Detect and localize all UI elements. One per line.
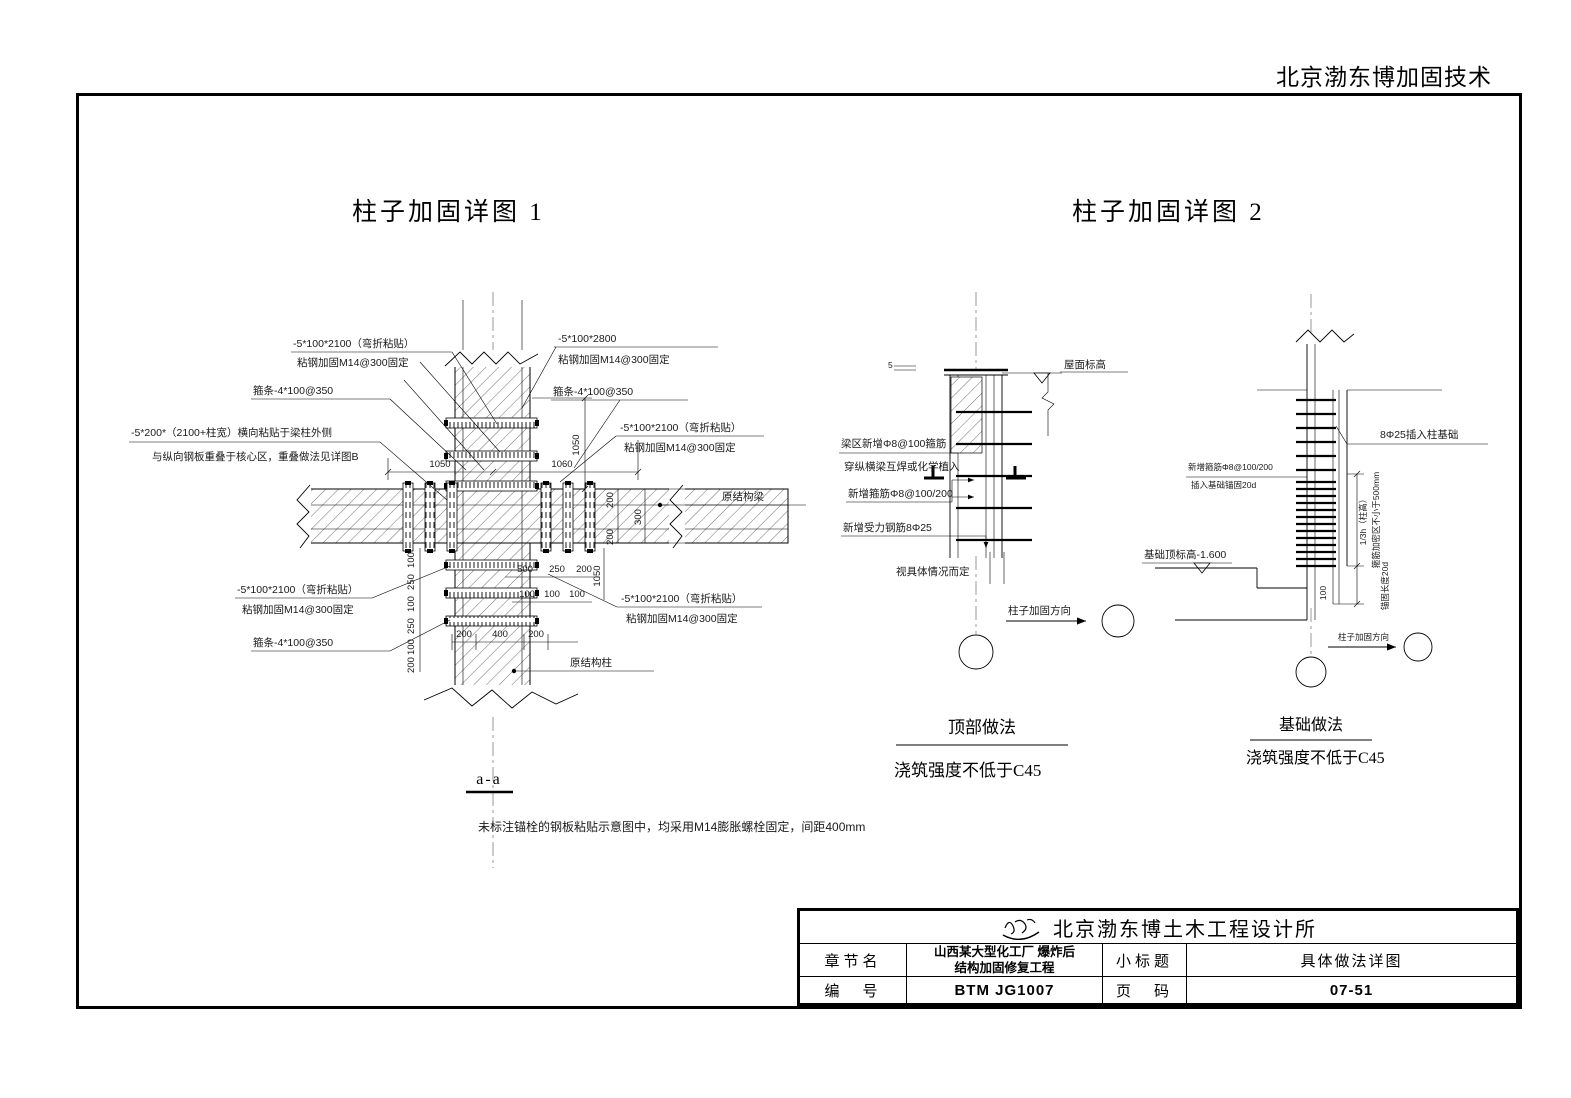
annotation: 梁区新增Φ8@100箍筋 bbox=[841, 437, 946, 450]
dim: 300 bbox=[633, 509, 644, 525]
annotation: 与纵向钢板重叠于核心区，重叠做法见详图B bbox=[152, 450, 359, 463]
subtitle-label: 小标题 bbox=[1102, 943, 1186, 976]
page-label: 页 码 bbox=[1102, 976, 1186, 1003]
annotation: 箍条-4*100@350 bbox=[253, 384, 333, 397]
annotation: -5*100*2800 bbox=[558, 333, 617, 345]
annotation: 粘钢加固M14@300固定 bbox=[558, 353, 670, 366]
caption-base-method: 基础做法 bbox=[1279, 716, 1343, 734]
label-roof-level: 屋面标高 bbox=[1064, 358, 1106, 371]
dim: 500 bbox=[517, 564, 533, 575]
dim: 200 bbox=[605, 529, 616, 545]
dim: 200 bbox=[605, 492, 616, 508]
dim: 200 bbox=[456, 629, 472, 640]
annotation: 粘钢加固M14@300固定 bbox=[624, 441, 736, 454]
dim: 250 bbox=[406, 618, 417, 634]
label-original-column: 原结构柱 bbox=[570, 656, 612, 669]
detail-2-base-annotations: 8Φ25插入柱基础 新增箍筋Φ8@100/200 插入基础锚固20d 基础顶标高… bbox=[1144, 428, 1458, 767]
annotation: 新增箍筋Φ8@100/200 bbox=[848, 487, 953, 500]
title-block: 北京渤东博土木工程设计所 章节名 山西某大型化工厂 爆炸后 结构加固修复工程 小… bbox=[797, 908, 1519, 1006]
project-line1: 山西某大型化工厂 爆炸后 bbox=[934, 945, 1075, 959]
annotation: 8Φ25插入柱基础 bbox=[1380, 428, 1458, 441]
dim: 1050 bbox=[571, 434, 582, 455]
annotation: 粘钢加固M14@300固定 bbox=[626, 612, 738, 625]
annotation: -5*100*2100（弯折粘贴） bbox=[620, 421, 741, 434]
dim: 250 bbox=[549, 564, 565, 575]
annotation: -5*200*（2100+柱宽）横向粘贴于梁柱外侧 bbox=[131, 426, 332, 439]
company-logo-icon bbox=[999, 914, 1043, 940]
label-original-beam: 原结构梁 bbox=[722, 490, 764, 503]
dim: 1060 bbox=[551, 459, 572, 470]
project-line2: 结构加固修复工程 bbox=[954, 961, 1054, 975]
annotation: 粘钢加固M14@300固定 bbox=[242, 603, 354, 616]
page-value: 07-51 bbox=[1186, 976, 1516, 1003]
annotation: 新增箍筋Φ8@100/200 bbox=[1188, 462, 1273, 472]
annotation: 插入基础锚固20d bbox=[1191, 480, 1256, 490]
dim: 200 bbox=[406, 657, 417, 673]
label-direction: 柱子加固方向 bbox=[1338, 632, 1389, 642]
dim: 100 bbox=[569, 589, 585, 600]
project-name: 山西某大型化工厂 爆炸后 结构加固修复工程 bbox=[906, 943, 1102, 976]
dim: 400 bbox=[492, 629, 508, 640]
dim: 100 bbox=[406, 639, 417, 655]
dim: 100 bbox=[406, 552, 417, 568]
dim: 1050 bbox=[429, 459, 450, 470]
dim: 100 bbox=[519, 589, 535, 600]
dim: 250 bbox=[406, 574, 417, 590]
annotation: 穿纵横梁互焊或化学植入 bbox=[844, 460, 960, 473]
dim: 箍筋加密区不小于500mm bbox=[1371, 472, 1381, 568]
detail-circle bbox=[959, 635, 993, 669]
detail-circle bbox=[1102, 605, 1134, 637]
annotation: 新增受力钢筋8Φ25 bbox=[843, 521, 932, 534]
code-label: 编 号 bbox=[800, 976, 906, 1003]
detail-circle bbox=[1404, 633, 1432, 661]
dim: 200 bbox=[528, 629, 544, 640]
code-value: BTM JG1007 bbox=[906, 976, 1102, 1003]
dim: 1/3h（柱高） bbox=[1358, 495, 1368, 546]
dim: 200 bbox=[576, 564, 592, 575]
title-block-company-row: 北京渤东博土木工程设计所 bbox=[800, 911, 1516, 943]
dim: 100 bbox=[406, 596, 417, 612]
dim: 1050 bbox=[592, 565, 603, 586]
dim: 100 bbox=[1318, 586, 1328, 600]
annotation: 箍条-4*100@350 bbox=[253, 636, 333, 649]
chapter-label: 章节名 bbox=[800, 943, 906, 976]
company-name: 北京渤东博土木工程设计所 bbox=[1053, 913, 1317, 942]
annotation: -5*100*2100（弯折粘贴） bbox=[237, 583, 358, 596]
annotation: 视具体情况而定 bbox=[896, 565, 970, 578]
annotation: -5*100*2100（弯折粘贴） bbox=[621, 592, 742, 605]
detail-circle bbox=[1296, 657, 1326, 687]
subtitle-value: 具体做法详图 bbox=[1186, 943, 1516, 976]
detail-1-linework bbox=[296, 292, 792, 868]
dim: 锚固长度20d bbox=[1380, 562, 1390, 610]
dim: 5 bbox=[888, 360, 893, 370]
section-label: a-a bbox=[476, 771, 502, 788]
detail-2-base-linework bbox=[1142, 294, 1488, 740]
annotation: 箍条-4*100@350 bbox=[553, 385, 633, 398]
annotation: -5*100*2100（弯折粘贴） bbox=[293, 337, 414, 350]
label-direction: 柱子加固方向 bbox=[1008, 604, 1071, 617]
caption-strength: 浇筑强度不低于C45 bbox=[894, 761, 1041, 780]
general-note: 未标注锚栓的钢板粘贴示意图中，均采用M14膨胀螺栓固定，间距400mm bbox=[478, 819, 865, 834]
caption-top-method: 顶部做法 bbox=[948, 718, 1016, 737]
label-foundation-level: 基础顶标高-1.600 bbox=[1144, 548, 1226, 561]
caption-strength: 浇筑强度不低于C45 bbox=[1246, 749, 1385, 767]
dim: 100 bbox=[544, 589, 560, 600]
annotation: 粘钢加固M14@300固定 bbox=[297, 356, 409, 369]
